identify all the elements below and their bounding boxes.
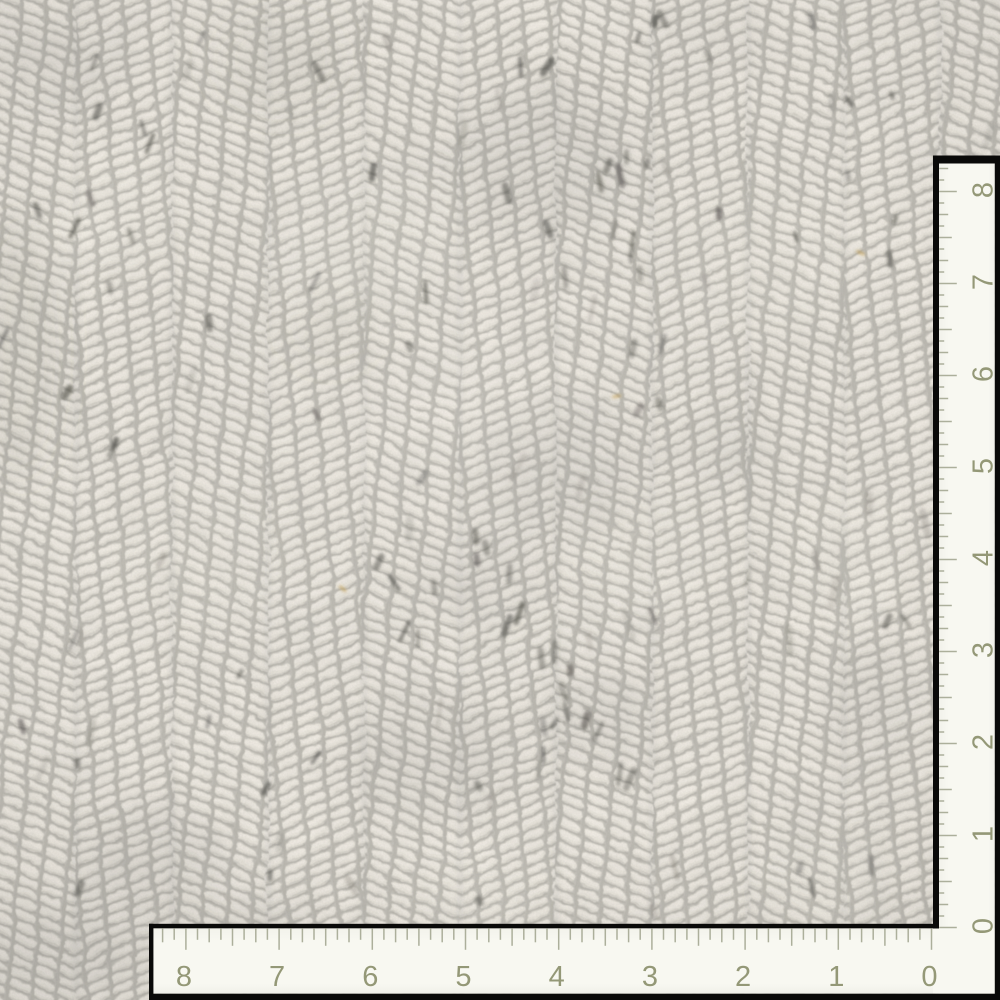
svg-text:0: 0: [921, 961, 937, 993]
svg-text:3: 3: [968, 642, 1000, 658]
svg-text:6: 6: [362, 961, 378, 993]
svg-text:3: 3: [642, 961, 658, 993]
svg-text:6: 6: [968, 366, 1000, 382]
svg-text:0: 0: [968, 918, 1000, 934]
svg-text:1: 1: [968, 826, 1000, 842]
svg-text:4: 4: [968, 550, 1000, 566]
svg-text:4: 4: [549, 961, 565, 993]
svg-text:2: 2: [735, 961, 751, 993]
svg-text:7: 7: [968, 274, 1000, 290]
svg-text:5: 5: [968, 458, 1000, 474]
svg-text:8: 8: [176, 961, 192, 993]
svg-text:1: 1: [828, 961, 844, 993]
svg-text:8: 8: [968, 182, 1000, 198]
svg-text:5: 5: [455, 961, 471, 993]
svg-text:7: 7: [269, 961, 285, 993]
svg-text:2: 2: [968, 734, 1000, 750]
